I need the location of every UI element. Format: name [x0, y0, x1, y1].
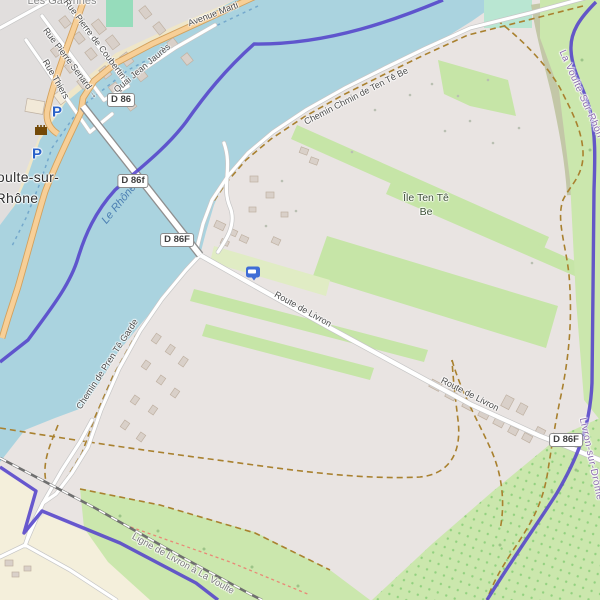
map-canvas: [0, 0, 600, 600]
route-badge-d86f-south: D 86F: [549, 433, 583, 447]
caravan-site-icon: [246, 267, 260, 278]
route-badge-d86: D 86: [107, 93, 135, 107]
caravan-pointer: [251, 277, 257, 281]
route-badge-d86f-bridge: D 86F: [160, 233, 194, 247]
caravan-glyph: [248, 270, 256, 274]
parking-icon: P: [32, 146, 42, 163]
parking-icon: P: [52, 104, 62, 121]
map-container[interactable]: Les Garennes oulte-sur- Rhône Avenue Mar…: [0, 0, 600, 600]
route-badge-d86f-lower: D 86f: [117, 174, 148, 188]
